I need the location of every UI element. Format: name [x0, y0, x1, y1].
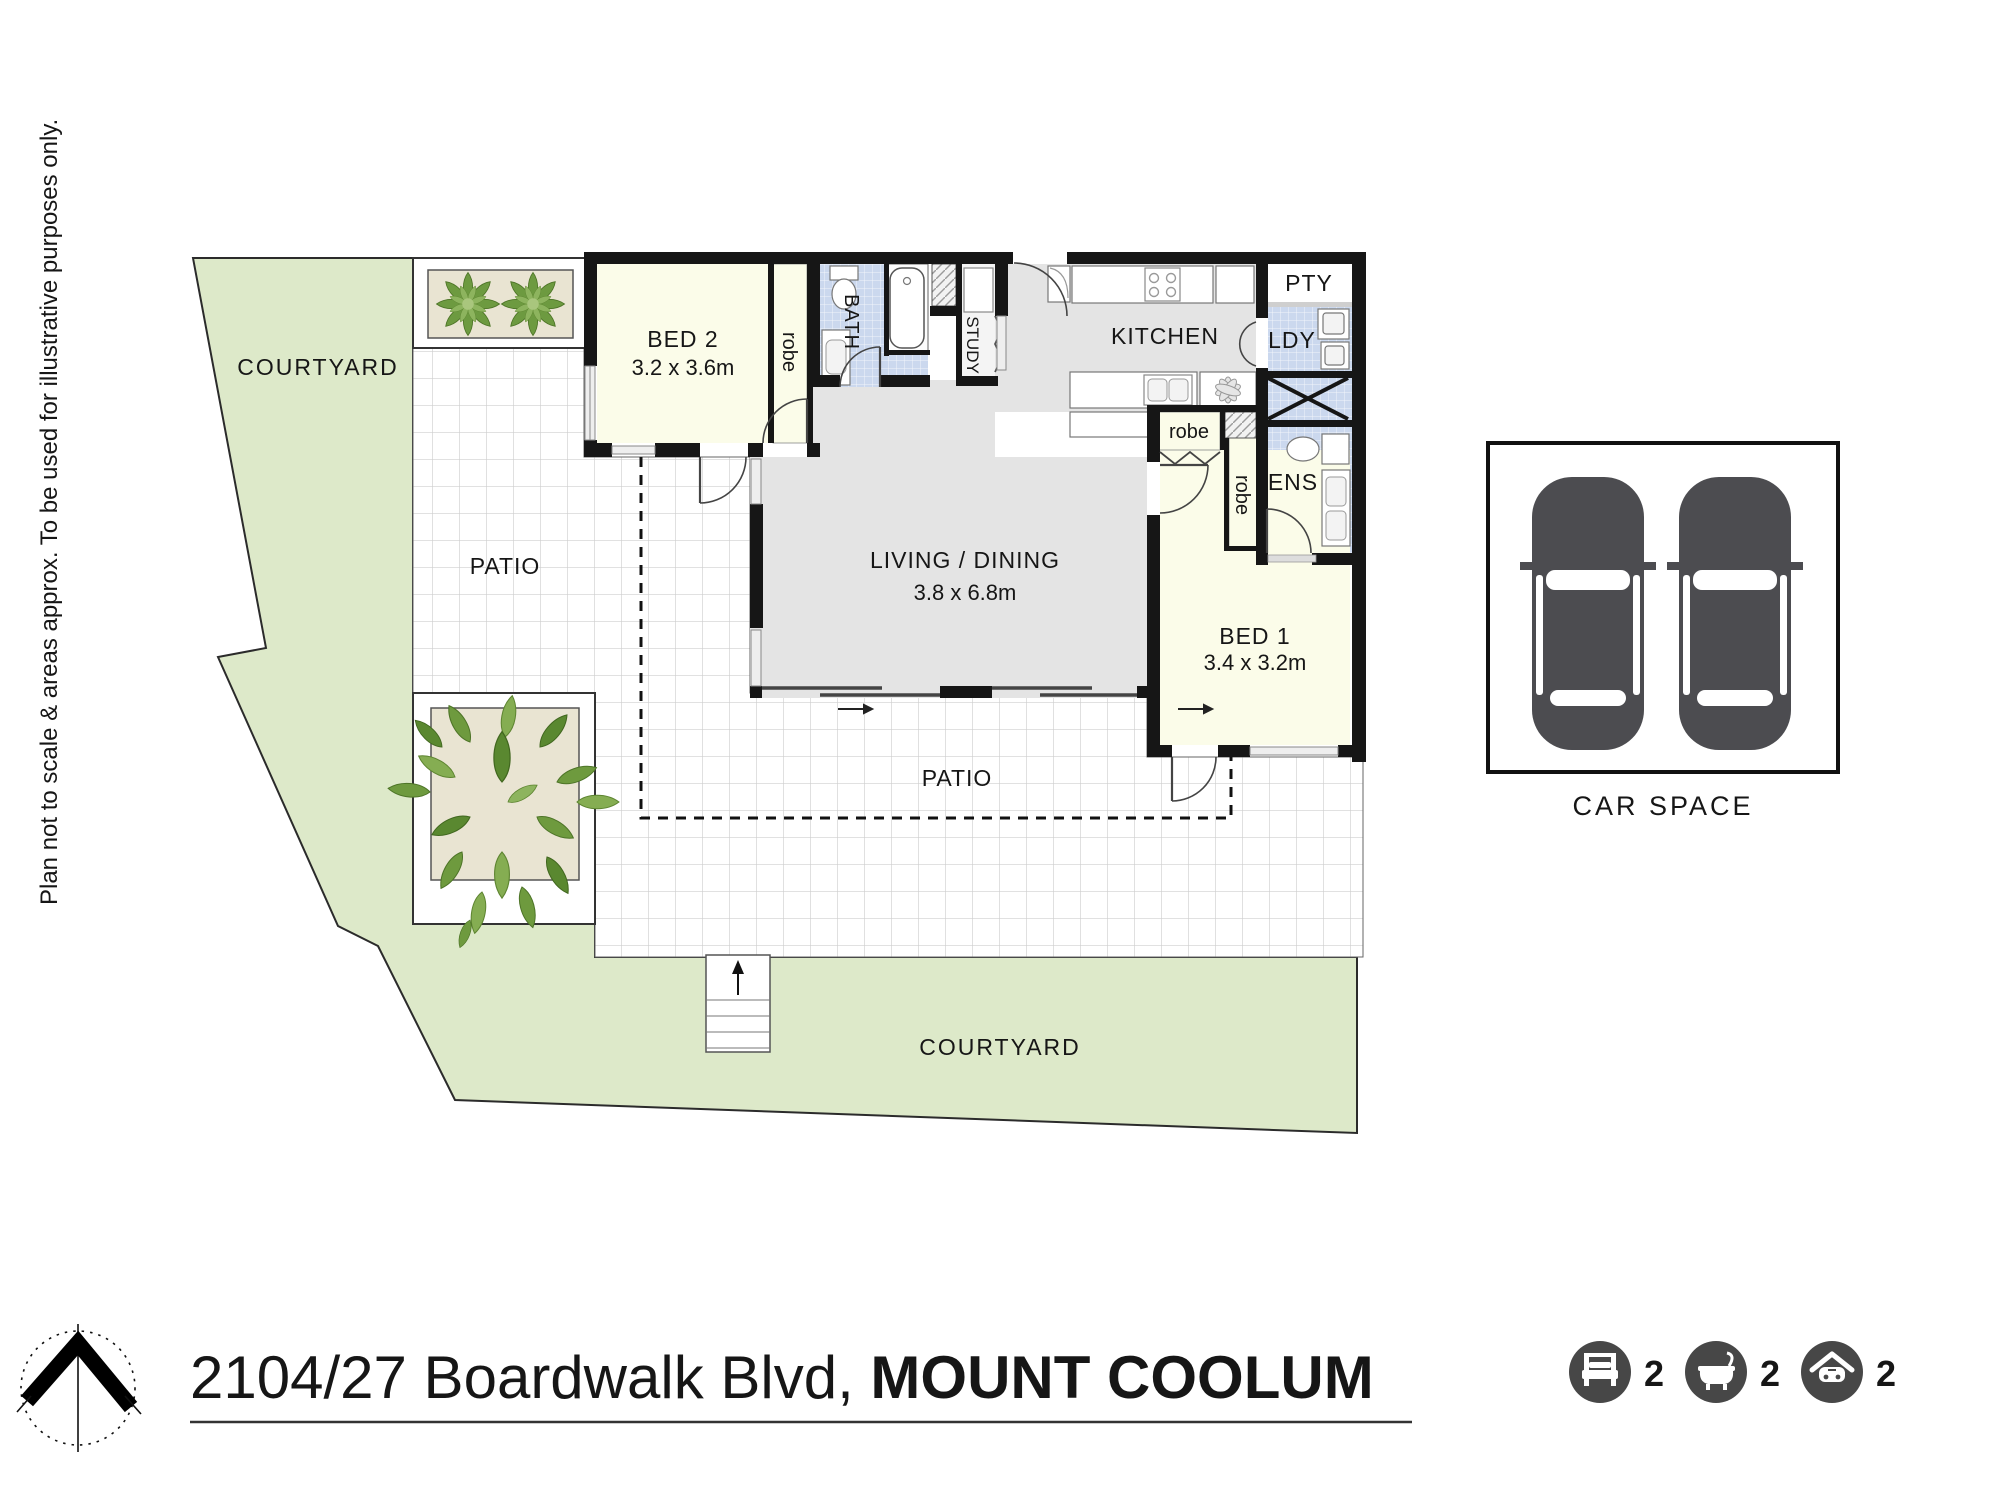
- bath-label: BATH: [840, 294, 862, 350]
- bath-stat: 2: [1685, 1341, 1780, 1403]
- courtyard-bottom-label: COURTYARD: [919, 1034, 1081, 1060]
- planter-box-tree: [388, 693, 619, 949]
- bed2-dims: 3.2 x 3.6m: [632, 355, 735, 380]
- floor-plan-canvas: COURTYARD COURTYARD PATIO PATIO BED 2 3.…: [0, 0, 2000, 1500]
- succulent-icon: [502, 273, 565, 336]
- north-compass-icon: [17, 1324, 141, 1452]
- study-label: STUDY: [963, 316, 982, 374]
- bathtub-icon: [890, 268, 924, 348]
- ens-label: ENS: [1268, 469, 1318, 495]
- title-suburb: MOUNT COOLUM: [870, 1344, 1373, 1411]
- planter-box-top: [413, 258, 588, 348]
- hatch-void-1: [932, 264, 956, 306]
- hall-floor: [808, 380, 995, 457]
- cooktop-icon: [1145, 268, 1180, 301]
- bed-stat: 2: [1569, 1341, 1664, 1403]
- bed2-floor: [597, 264, 768, 443]
- toilet-cistern: [1322, 434, 1349, 464]
- bed1-robe-h-label: robe: [1169, 421, 1209, 443]
- patio-left-label: PATIO: [470, 553, 541, 579]
- kitchen-label: KITCHEN: [1111, 323, 1219, 349]
- bed2-label: BED 2: [647, 326, 718, 352]
- living-floor: [750, 457, 1147, 698]
- living-label: LIVING / DINING: [870, 547, 1060, 573]
- car-icon: [1520, 477, 1656, 750]
- succulent-icon: [437, 273, 500, 336]
- hatch-void-2: [1225, 412, 1256, 438]
- garage-count: 2: [1876, 1353, 1896, 1394]
- living-dims: 3.8 x 6.8m: [914, 580, 1017, 605]
- toilet-icon: [1287, 437, 1319, 461]
- courtyard-top-label: COURTYARD: [237, 354, 399, 380]
- car-icon: [1667, 477, 1803, 750]
- floor-plan-page: COURTYARD COURTYARD PATIO PATIO BED 2 3.…: [0, 0, 2000, 1500]
- disclaimer-text: Plan not to scale & areas approx. To be …: [36, 119, 63, 905]
- pty-shelf: [1268, 302, 1352, 307]
- bed2-robe-label: robe: [778, 332, 800, 372]
- pty-label: PTY: [1285, 270, 1333, 296]
- bed1-dims: 3.4 x 3.2m: [1204, 650, 1307, 675]
- bed1-label: BED 1: [1219, 623, 1290, 649]
- stairs: [706, 955, 770, 1052]
- ldy-label: LDY: [1268, 327, 1316, 353]
- bed-count: 2: [1644, 1353, 1664, 1394]
- bed1-robe-v-label: robe: [1231, 475, 1253, 515]
- bath-count: 2: [1760, 1353, 1780, 1394]
- title-address: 2104/27 Boardwalk Blvd,: [190, 1344, 870, 1411]
- laundry-appliances: [1318, 309, 1349, 369]
- sink-icon: [1144, 375, 1192, 405]
- patio-bottom-label: PATIO: [922, 765, 993, 791]
- car-stat: 2: [1801, 1341, 1896, 1403]
- car-space-panel: CAR SPACE: [1488, 443, 1838, 821]
- page-title: 2104/27 Boardwalk Blvd, MOUNT COOLUM: [190, 1344, 1374, 1411]
- toilet-cistern: [830, 266, 858, 280]
- car-space-label: CAR SPACE: [1572, 791, 1753, 821]
